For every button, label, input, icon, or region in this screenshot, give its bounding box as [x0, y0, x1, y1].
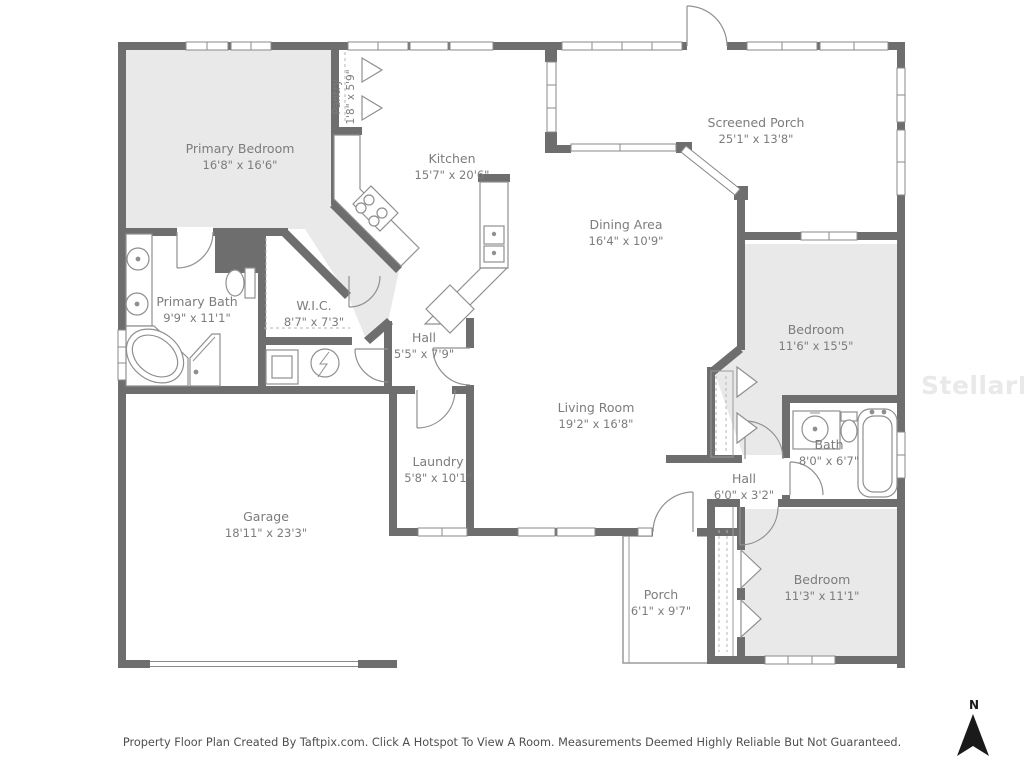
room-label-garage[interactable]: Garage 18'11" x 23'3": [225, 509, 307, 541]
front-door: [653, 492, 693, 532]
compass-north-label: N: [952, 698, 996, 712]
garage-door: [150, 660, 358, 668]
primary-bath-door: [177, 232, 213, 268]
compass: N: [952, 698, 996, 764]
pantry-bifold-icon: [362, 58, 382, 82]
plan-caption: Property Floor Plan Created By Taftpix.c…: [123, 736, 901, 749]
bathtub-icon: [858, 409, 897, 497]
room-label-bath-2[interactable]: Bath 8'0" x 6'7": [799, 437, 859, 469]
floor-plan-drawing: [0, 0, 1024, 768]
room-label-screened-porch[interactable]: Screened Porch 25'1" x 13'8": [708, 115, 805, 147]
diagonal-window: [681, 146, 740, 195]
room-label-hall-east[interactable]: Hall 6'0" x 3'2": [714, 471, 774, 503]
stove-burner-icon: [377, 208, 387, 218]
primary-bedroom-fill: [126, 50, 331, 229]
north-arrow-icon: [952, 712, 996, 760]
room-label-dining-area[interactable]: Dining Area 16'4" x 10'9": [589, 217, 664, 249]
laundry-door: [417, 390, 455, 428]
room-label-wic[interactable]: W.I.C. 8'7" x 7'3": [284, 298, 344, 330]
stove-burner-icon: [364, 195, 374, 205]
room-label-pantry[interactable]: Pantry 1'8" x 5'9": [330, 69, 358, 124]
floor-plan-page: Primary Bedroom 16'8" x 16'6" Pantry 1'8…: [0, 0, 1024, 768]
water-softener-icon: [266, 350, 298, 384]
room-label-laundry[interactable]: Laundry 5'8" x 10'1": [404, 454, 472, 486]
room-label-primary-bath[interactable]: Primary Bath 9'9" x 11'1": [156, 294, 237, 326]
pantry-bifold-icon: [362, 96, 382, 120]
stellar-mls-watermark: StellarMLS: [921, 371, 1024, 400]
room-label-bedroom-1[interactable]: Bedroom 11'6" x 15'5": [779, 322, 854, 354]
room-label-living-room[interactable]: Living Room 19'2" x 16'8": [558, 400, 635, 432]
screen-door: [687, 6, 727, 46]
room-label-kitchen[interactable]: Kitchen 15'7" x 20'6": [415, 151, 490, 183]
stove-burner-icon: [356, 203, 366, 213]
utility-door: [355, 349, 388, 382]
room-label-porch[interactable]: Porch 6'1" x 9'7": [631, 587, 691, 619]
room-label-bedroom-2[interactable]: Bedroom 11'3" x 11'1": [785, 572, 860, 604]
stove-burner-icon: [369, 216, 379, 226]
water-heater-icon: [311, 349, 339, 377]
room-label-hall-west[interactable]: Hall 5'5" x 7'9": [394, 330, 454, 362]
room-label-primary-bedroom[interactable]: Primary Bedroom 16'8" x 16'6": [186, 141, 295, 173]
utility-fixtures: [266, 349, 339, 384]
